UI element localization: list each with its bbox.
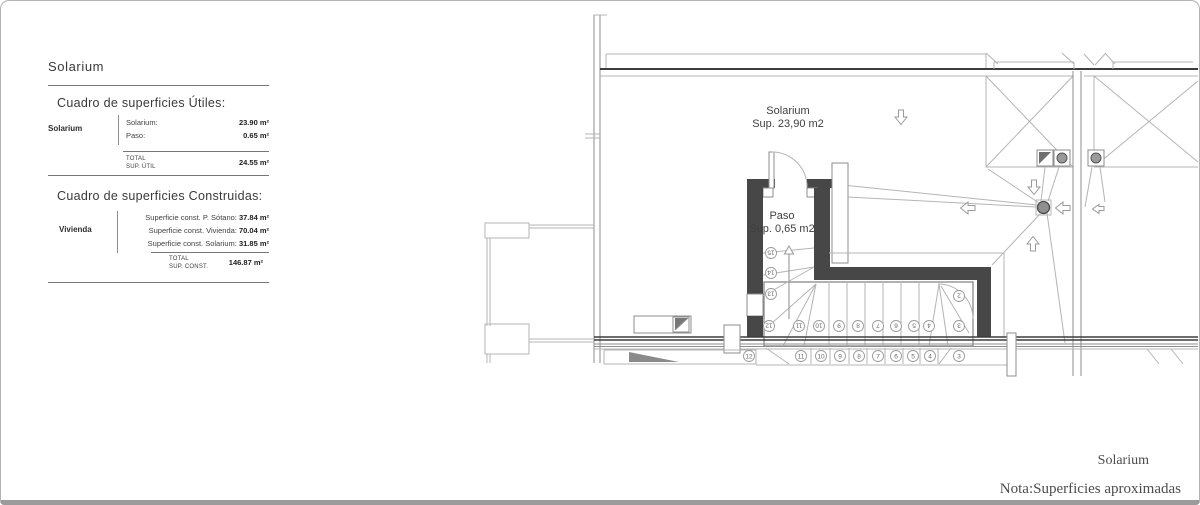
step-number: 11: [798, 354, 805, 361]
utiles-total-label-1: TOTAL: [126, 156, 146, 162]
utiles-label-paso: Paso:: [126, 131, 145, 140]
utiles-total-value: 24.55 m²: [211, 158, 269, 167]
row-value-text: 31.85 m²: [239, 239, 269, 248]
total-divider: [151, 252, 269, 253]
step-number: 5: [911, 354, 915, 361]
step-number: 10: [815, 322, 823, 329]
step-number: 12: [765, 322, 773, 329]
solarium-room-label: Solarium: [766, 105, 809, 117]
arrow-left-icon: [1093, 205, 1105, 214]
divider: [48, 282, 269, 283]
step-number: 5: [912, 322, 916, 329]
step-number: 9: [838, 354, 842, 361]
construidas-row-sotano: Superficie const. P. Sótano: 37.84 m²: [126, 213, 269, 222]
step-number: 8: [857, 354, 861, 361]
construidas-row-solarium: Superficie const. Solarium: 31.85 m²: [126, 239, 269, 248]
sheet-title: Solarium: [1098, 453, 1149, 469]
slope-lines: [833, 167, 1105, 343]
floor-plan: 15 14 13 12 11 10 9 8 7 6 5 4 3 2 12 11 …: [461, 1, 1200, 401]
construidas-row-label: Vivienda: [59, 225, 92, 234]
table-divider: [118, 115, 119, 145]
stairs-lower: [724, 325, 1183, 376]
step-number: 2: [957, 292, 961, 299]
row-label-text: Superficie const. Solarium:: [148, 239, 239, 248]
row-value-text: 70.04 m²: [239, 226, 269, 235]
right-wall: [1073, 71, 1081, 376]
row-label-text: Superficie const. P. Sótano:: [145, 213, 239, 222]
step-numbers-upper: 15 14 13 12 11 10 9 8 7 6 5 4 3 2: [764, 248, 965, 332]
utiles-value-paso: 0.65 m²: [211, 131, 269, 140]
drain-circle-icon: [1091, 153, 1101, 163]
top-wall-strip: [600, 53, 1198, 76]
step-number: 15: [767, 249, 775, 256]
page-title: Solarium: [48, 59, 104, 74]
step-number: 10: [817, 354, 825, 361]
paso-room-area: Sup. 0,65 m2: [749, 223, 814, 235]
step-number: 8: [856, 322, 860, 329]
step-number: 3: [957, 354, 961, 361]
door-swing-arc: [772, 152, 807, 187]
row-value-text: 37.84 m²: [239, 213, 269, 222]
pillar: [724, 325, 740, 353]
terrace-planters: [485, 223, 594, 363]
step-number: 14: [767, 269, 775, 276]
construidas-total-label-1: TOTAL: [169, 256, 189, 262]
arrow-up-icon: [1027, 237, 1039, 252]
section-cut-band: [594, 337, 1198, 349]
duct-column: [832, 163, 848, 263]
ramp-triangle-icon: [629, 352, 679, 362]
arrow-down-icon: [1028, 180, 1040, 195]
utiles-heading: Cuadro de superficies Útiles:: [57, 96, 226, 110]
step-number: 7: [876, 322, 880, 329]
plan-left-wall: [585, 15, 607, 363]
step-number: 13: [767, 290, 775, 297]
arrow-down-icon: [895, 110, 907, 125]
drawing-sheet: Solarium Cuadro de superficies Útiles: S…: [0, 0, 1200, 505]
total-divider: [123, 151, 269, 152]
sheet-note: Nota:Superficies aproximadas: [1000, 481, 1181, 498]
step-number: 12: [745, 354, 753, 361]
pillar: [1007, 333, 1016, 376]
table-divider: [117, 211, 118, 253]
utiles-row-label: Solarium: [48, 124, 82, 133]
step-number: 6: [894, 354, 898, 361]
construidas-heading: Cuadro de superficies Construidas:: [57, 189, 262, 203]
divider: [48, 175, 269, 176]
drain-circle-icon: [1057, 153, 1067, 163]
step-number: 3: [957, 322, 961, 329]
solarium-room-area: Sup. 23,90 m2: [752, 118, 824, 130]
paso-room-label: Paso: [769, 210, 794, 222]
construidas-total-value: 146.87 m²: [211, 258, 263, 267]
roof-drain-icon: [1038, 202, 1050, 214]
step-number: 6: [894, 322, 898, 329]
step-number: 11: [795, 322, 802, 329]
step-number: 7: [876, 354, 880, 361]
construidas-row-vivienda: Superficie const. Vivienda: 70.04 m²: [126, 226, 269, 235]
step-number: 4: [927, 322, 931, 329]
step-number: 9: [837, 322, 841, 329]
utiles-total-label-2: SUP. ÚTIL: [126, 164, 156, 170]
arrow-left-icon: [1056, 202, 1071, 214]
door-leaf: [769, 152, 774, 188]
divider: [48, 85, 269, 86]
step-number: 4: [928, 354, 932, 361]
utiles-label-solarium: Solarium:: [126, 118, 158, 127]
row-label-text: Superficie const. Vivienda:: [149, 226, 239, 235]
utiles-value-solarium: 23.90 m²: [211, 118, 269, 127]
construidas-total-label-2: SUP. CONST.: [169, 264, 208, 270]
